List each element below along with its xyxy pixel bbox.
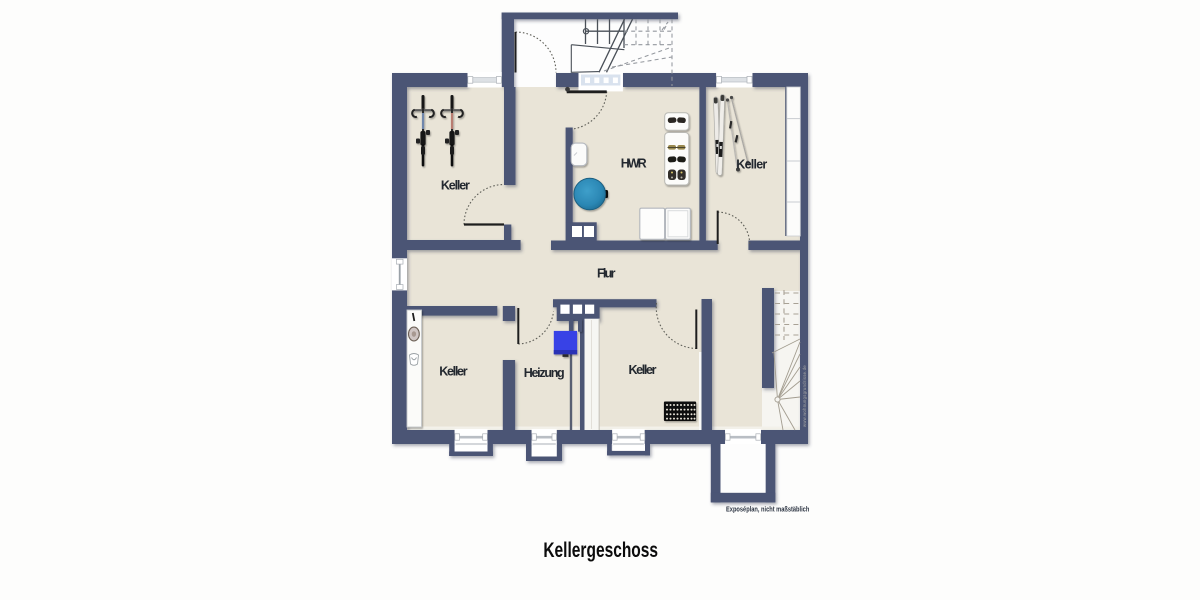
svg-text:Keller: Keller [441, 178, 470, 192]
svg-text:Exposéplan, nicht maßstäblich: Exposéplan, nicht maßstäblich [726, 504, 810, 513]
svg-text:Kellergeschoss: Kellergeschoss [543, 538, 658, 562]
svg-text:Keller: Keller [736, 158, 767, 172]
svg-text:www.wohnungsgrundrisse.de: www.wohnungsgrundrisse.de [802, 365, 807, 427]
svg-text:HWR: HWR [621, 156, 647, 170]
svg-text:Keller: Keller [439, 365, 468, 379]
svg-text:Flur: Flur [597, 267, 616, 281]
svg-text:Heizung: Heizung [524, 366, 565, 380]
svg-text:Keller: Keller [629, 363, 657, 377]
